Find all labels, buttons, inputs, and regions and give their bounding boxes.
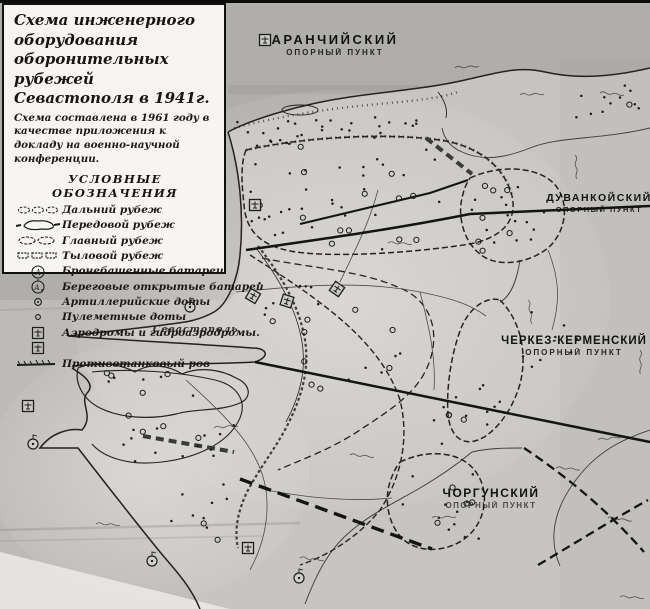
- mg-pillbox-mark: [453, 523, 456, 526]
- strongpoint-name: ЧЕРКЕЗ-КЕРМЕНСКИЙ: [493, 335, 650, 347]
- strongpoint-sub: ОПОРНЫЙ ПУНКТ: [428, 501, 554, 510]
- mg-pillbox-mark: [317, 303, 320, 306]
- mg-pillbox-mark: [280, 211, 283, 214]
- legend-item-label: Противотанковый ров: [62, 358, 210, 370]
- mg-pillbox-mark: [438, 201, 441, 204]
- mg-pillbox-mark: [321, 125, 324, 128]
- map-scan-page: Схема инженерного оборудования обороните…: [0, 0, 650, 609]
- mg-pillbox-mark: [493, 212, 496, 215]
- map-title: Схема инженерного оборудования обороните…: [14, 11, 216, 109]
- mg-pillbox-mark: [486, 423, 489, 426]
- mg-pillbox-mark: [486, 411, 489, 414]
- legend-item-forward-line: Передовой рубеж: [14, 217, 216, 232]
- airfield-icon: [243, 543, 254, 554]
- mg-pillbox-mark: [132, 429, 135, 432]
- mg-pillbox-mark: [310, 286, 313, 289]
- mg-pillbox-mark: [304, 169, 307, 172]
- mg-pillbox-mark: [415, 119, 418, 122]
- mg-pillbox-mark: [331, 199, 334, 202]
- hydro-airfield-icon: [14, 341, 62, 355]
- mg-pillbox-mark: [373, 136, 376, 139]
- legend-item-label: Передовой рубеж: [62, 219, 175, 231]
- mg-pillbox-mark: [202, 517, 205, 520]
- mg-pillbox-mark: [299, 285, 302, 288]
- mg-pillbox-mark: [262, 132, 265, 135]
- mg-pillbox-mark: [210, 448, 213, 451]
- mg-pillbox-mark: [580, 95, 583, 98]
- mg-pillbox-mark: [601, 111, 604, 114]
- legend-item-main-line: Главный рубеж: [14, 233, 216, 248]
- mg-pillbox-mark: [288, 143, 291, 146]
- mg-pillbox-mark: [329, 119, 332, 122]
- mg-pillbox-mark: [634, 103, 637, 106]
- mg-pillbox-mark: [130, 437, 133, 440]
- legend-box: Схема инженерного оборудования обороните…: [2, 3, 226, 274]
- mg-pillbox-mark: [181, 493, 184, 496]
- mg-pillbox-mark: [514, 220, 517, 223]
- mg-pillbox-mark: [289, 172, 292, 175]
- mg-pillbox-mark: [274, 234, 277, 237]
- mg-pillbox-mark: [197, 445, 200, 448]
- mg-pillbox-mark: [472, 473, 475, 476]
- mg-pillbox-mark: [170, 520, 173, 523]
- mg-pillbox-mark: [629, 89, 632, 92]
- mg-pillbox-mark: [485, 229, 488, 232]
- mg-pillbox-mark: [563, 324, 566, 327]
- mg-pillbox-mark: [415, 122, 418, 125]
- mg-pillbox-mark: [254, 163, 257, 166]
- mg-pillbox-mark: [505, 204, 508, 207]
- mg-pillbox-mark: [575, 116, 578, 119]
- mg-pillbox-mark: [256, 144, 259, 147]
- mg-pillbox-mark: [380, 371, 383, 374]
- mg-pillbox-mark: [305, 285, 308, 288]
- legend-header: УСЛОВНЫЕ ОБОЗНАЧЕНИЯ: [14, 172, 216, 200]
- mg-pillbox-mark: [515, 239, 518, 242]
- mg-pillbox-mark: [477, 537, 480, 540]
- mg-pillbox-mark: [348, 129, 351, 132]
- mg-pillbox-mark: [455, 396, 458, 399]
- mg-pillbox-mark: [107, 380, 110, 383]
- mg-pillbox-mark: [637, 107, 640, 110]
- legend-item-artillery-pillbox: Артиллерийские доты: [14, 294, 216, 309]
- mg-pillbox-mark: [272, 302, 275, 305]
- mg-pillbox-mark: [249, 191, 252, 194]
- mg-pillbox-mark: [394, 355, 397, 358]
- mg-pillbox-mark: [374, 214, 377, 217]
- mg-pillbox-mark: [258, 216, 261, 219]
- mg-pillbox-mark: [474, 198, 477, 201]
- forward-line-icon: [14, 218, 62, 232]
- mg-pillbox-mark: [287, 120, 290, 123]
- mg-pillbox-mark: [433, 419, 436, 422]
- strongpoint-sub: ОПОРНЫЙ ПУНКТ: [262, 48, 408, 57]
- mg-pillbox-mark: [279, 139, 282, 142]
- airfield-icon: [14, 326, 62, 340]
- antitank-ditch-icon: [14, 359, 62, 369]
- mg-pillbox-mark: [363, 188, 366, 191]
- mg-pillbox-mark: [301, 207, 304, 210]
- mg-pillbox-mark: [181, 455, 184, 458]
- mg-pillbox-mark: [379, 132, 382, 135]
- mg-pillbox-mark: [269, 139, 272, 142]
- mg-pillbox-mark: [263, 218, 266, 221]
- legend-item-rear-line: Тыловой рубеж: [14, 248, 216, 263]
- mg-pillbox-mark: [206, 526, 209, 529]
- mg-pillbox-mark: [404, 122, 407, 125]
- mg-pillbox-mark: [399, 352, 402, 355]
- svg-text:А: А: [34, 268, 41, 277]
- mg-pillbox-mark: [506, 214, 509, 217]
- mg-pillbox-mark: [122, 443, 125, 446]
- mg-pillbox-mark: [347, 378, 350, 381]
- mg-pillbox-mark: [350, 122, 353, 125]
- mg-pillbox-mark: [134, 460, 137, 463]
- mg-pillbox-mark: [376, 158, 379, 161]
- mg-pillbox-mark: [296, 135, 299, 138]
- mg-pillbox-icon: [14, 312, 62, 322]
- mg-pillbox-mark: [482, 384, 485, 387]
- mg-pillbox-mark: [282, 231, 285, 234]
- mg-pillbox-mark: [203, 434, 206, 437]
- mg-pillbox-mark: [311, 226, 314, 229]
- mg-pillbox-mark: [160, 376, 163, 379]
- mg-pillbox-mark: [305, 188, 308, 191]
- legend-item-armored-battery: А Бронебашенные батареи: [14, 264, 216, 279]
- mg-pillbox-mark: [624, 84, 627, 87]
- mg-pillbox-mark: [226, 498, 229, 501]
- mg-pillbox-mark: [344, 214, 347, 217]
- mg-pillbox-mark: [388, 121, 391, 124]
- mg-pillbox-mark: [268, 215, 271, 218]
- mg-pillbox-mark: [464, 536, 467, 539]
- mg-pillbox-mark: [381, 248, 384, 251]
- strongpoint-label-chorgun: ЧОРГУНСКИЙ ОПОРНЫЙ ПУНКТ: [428, 486, 554, 510]
- mg-pillbox-mark: [499, 400, 502, 403]
- svg-text:А: А: [33, 283, 40, 292]
- mg-pillbox-mark: [154, 451, 157, 454]
- mg-pillbox-mark: [434, 158, 437, 161]
- mg-pillbox-mark: [300, 134, 303, 137]
- mg-pillbox-mark: [500, 196, 503, 199]
- legend-item-label: Пулеметные доты: [62, 311, 186, 323]
- mg-pillbox-mark: [364, 367, 367, 370]
- mg-pillbox-mark: [294, 122, 297, 125]
- legend-item-hydro-airfield: [14, 341, 216, 356]
- mg-pillbox-mark: [286, 142, 289, 145]
- mg-pillbox-mark: [288, 208, 291, 211]
- legend-item-label: Тыловой рубеж: [62, 250, 163, 262]
- strongpoint-sub: ОПОРНЫЙ ПУНКТ: [493, 348, 650, 357]
- legend-item-far-line: Дальний рубеж: [14, 202, 216, 217]
- mg-pillbox-mark: [539, 359, 542, 362]
- mg-pillbox-mark: [448, 528, 451, 531]
- mg-pillbox-mark: [493, 241, 496, 244]
- mg-pillbox-mark: [619, 96, 622, 99]
- mg-pillbox-mark: [315, 119, 318, 122]
- mg-pillbox-mark: [211, 502, 214, 505]
- strongpoint-label-aranchi: АРАНЧИЙСКИЙ ОПОРНЫЙ ПУНКТ: [262, 32, 408, 57]
- mg-pillbox-mark: [603, 96, 606, 99]
- legend-item-label: Артиллерийские доты: [62, 296, 210, 308]
- mg-pillbox-mark: [441, 442, 444, 445]
- mg-pillbox-mark: [247, 131, 250, 134]
- mg-pillbox-mark: [402, 174, 405, 177]
- mg-pillbox-mark: [264, 313, 267, 316]
- mg-pillbox-mark: [321, 129, 324, 132]
- mg-pillbox-mark: [192, 394, 195, 397]
- mg-pillbox-mark: [531, 366, 534, 369]
- mg-pillbox-mark: [465, 414, 468, 417]
- strongpoint-name: ДУВАНКОЙСКИЙ: [536, 192, 650, 204]
- mg-pillbox-mark: [340, 206, 343, 209]
- rear-line-icon: [14, 251, 62, 260]
- mg-pillbox-mark: [236, 121, 239, 124]
- legend-item-label: Главный рубеж: [62, 235, 163, 247]
- mg-pillbox-mark: [362, 174, 365, 177]
- mg-pillbox-mark: [331, 202, 334, 205]
- coastal-open-battery-icon: А: [14, 279, 62, 294]
- mg-pillbox-mark: [338, 166, 341, 169]
- mg-pillbox-mark: [609, 102, 612, 105]
- airfield-icon: [280, 294, 294, 308]
- map-subtitle: Схема составлена в 1961 году в качестве …: [14, 112, 216, 168]
- far-line-icon: [14, 205, 62, 215]
- mg-pillbox-mark: [142, 378, 145, 381]
- strongpoint-name: АРАНЧИЙСКИЙ: [262, 32, 408, 47]
- strongpoint-name: ЧОРГУНСКИЙ: [428, 486, 554, 500]
- mg-pillbox-mark: [590, 113, 593, 116]
- main-line-icon: [14, 235, 62, 246]
- mg-pillbox-mark: [374, 116, 377, 119]
- mg-pillbox-mark: [412, 124, 415, 127]
- mg-pillbox-mark: [479, 388, 482, 391]
- mg-pillbox-mark: [402, 503, 405, 506]
- mg-pillbox-mark: [493, 406, 496, 409]
- mg-pillbox-mark: [265, 307, 268, 310]
- mg-pillbox-mark: [212, 454, 215, 457]
- mg-pillbox-mark: [533, 228, 536, 231]
- strongpoint-label-cherkez-kermen: ЧЕРКЕЗ-КЕРМЕНСКИЙ ОПОРНЫЙ ПУНКТ: [493, 335, 650, 357]
- mg-pillbox-mark: [156, 427, 159, 430]
- legend-item-coastal-battery: А Береговые открытые батареи: [14, 279, 216, 294]
- mg-pillbox-mark: [517, 186, 520, 189]
- legend-item-label: Береговые открытые батареи: [62, 281, 264, 293]
- legend-item-mg-pillbox: Пулеметные доты: [14, 310, 216, 325]
- mg-pillbox-mark: [222, 483, 225, 486]
- mg-pillbox-mark: [382, 163, 385, 166]
- mg-pillbox-mark: [378, 125, 381, 128]
- mg-pillbox-mark: [530, 238, 533, 241]
- legend-item-antitank-ditch: Противотанковый ров: [14, 356, 216, 371]
- legend-item-label: Дальний рубеж: [62, 204, 162, 216]
- legend-item-label: Бронебашенные батареи: [62, 265, 224, 277]
- mg-pillbox-mark: [526, 221, 529, 224]
- armored-turret-battery-icon: А: [14, 264, 62, 279]
- mg-pillbox-mark: [113, 377, 116, 380]
- legend-item-label: Аэродромы и гидроаэродромы.: [62, 327, 260, 339]
- airfield-icon: [23, 401, 34, 412]
- mg-pillbox-mark: [277, 127, 280, 130]
- mg-pillbox-mark: [425, 148, 428, 151]
- mg-pillbox-mark: [411, 475, 414, 478]
- mg-pillbox-mark: [192, 514, 195, 517]
- airfield-icon: [250, 200, 261, 211]
- mg-pillbox-mark: [362, 166, 365, 169]
- mg-pillbox-mark: [456, 510, 459, 513]
- strongpoint-sub: ОПОРНЫЙ ПУНКТ: [536, 205, 650, 214]
- artillery-pillbox-icon: [14, 296, 62, 308]
- strongpoint-label-duvankoy: ДУВАНКОЙСКИЙ ОПОРНЫЙ ПУНКТ: [536, 192, 650, 214]
- mg-pillbox-mark: [251, 220, 254, 223]
- mg-pillbox-mark: [442, 406, 445, 409]
- mg-pillbox-mark: [340, 128, 343, 131]
- mg-pillbox-mark: [219, 433, 222, 436]
- legend-item-airfield: Аэродромы и гидроаэродромы.: [14, 325, 216, 340]
- mg-pillbox-mark: [471, 209, 474, 212]
